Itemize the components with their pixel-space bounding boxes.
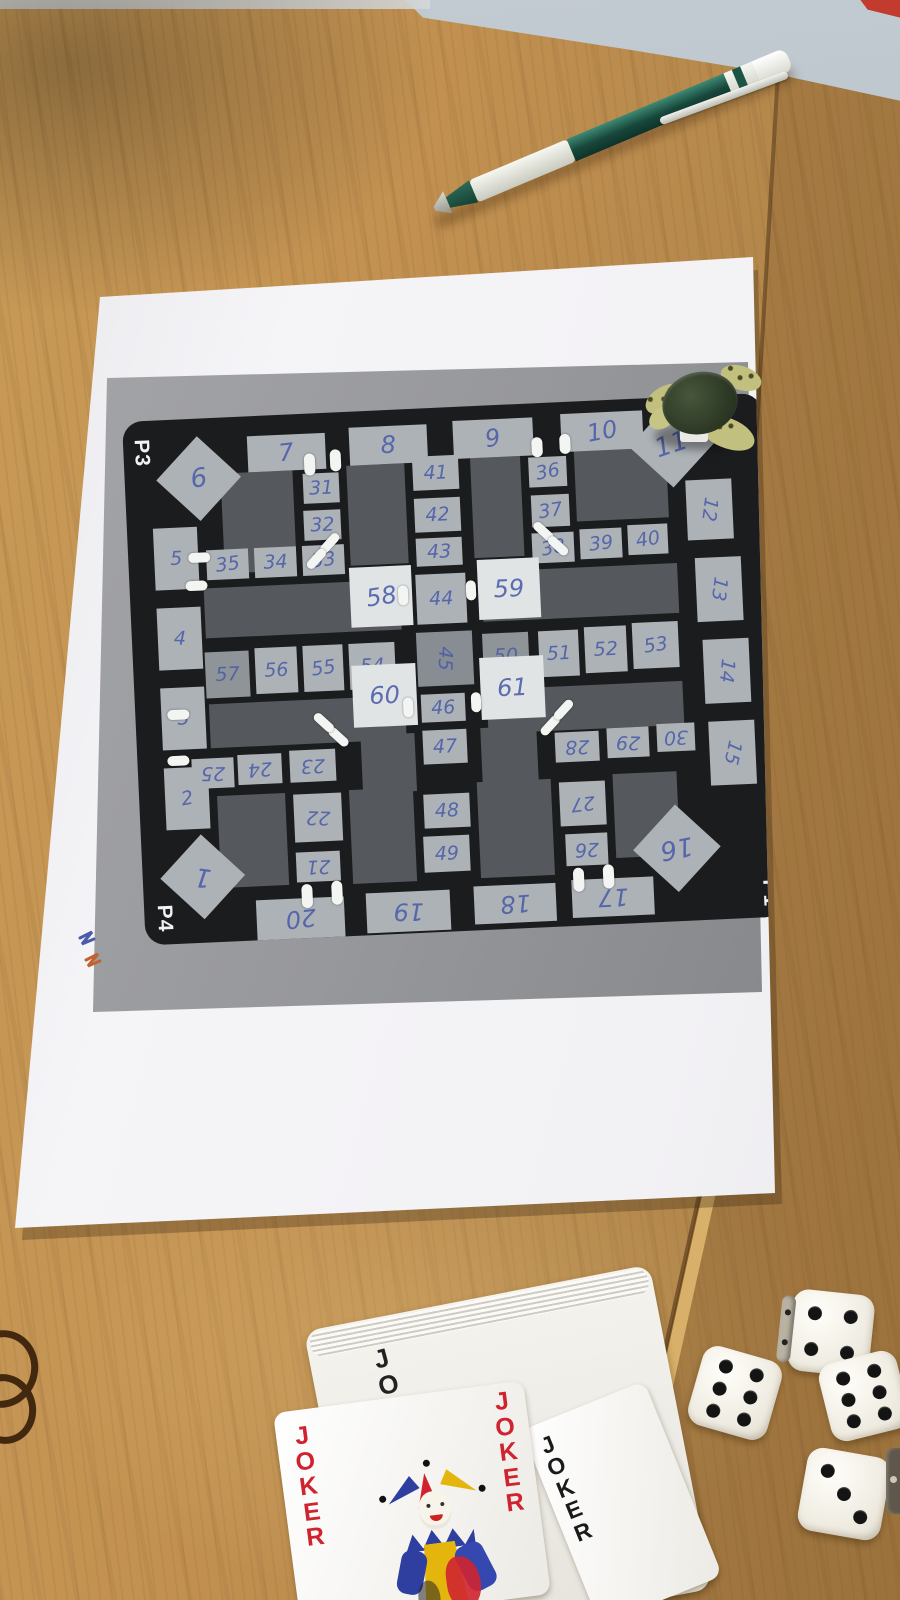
cell-number: 42 [425, 503, 450, 526]
board-cell-13: 13 [695, 556, 744, 622]
white-tick-mark [603, 864, 615, 888]
white-tick-mark [466, 580, 477, 600]
board-cell-47: 47 [422, 729, 467, 765]
cell-number: 20 [284, 903, 318, 934]
board-cell-25: 25 [191, 757, 234, 789]
board-cell-42: 42 [414, 497, 461, 533]
board-cell-45: 45 [416, 630, 474, 686]
board-cell-40: 40 [627, 523, 668, 555]
board-cell-28: 28 [555, 731, 600, 763]
board-cell-35: 35 [206, 548, 249, 580]
white-tick-mark [531, 437, 543, 457]
board-cell-23: 23 [289, 749, 336, 783]
cell-number: 4 [174, 627, 187, 649]
cell-number: 9 [483, 423, 502, 453]
board-cell-14: 14 [702, 638, 751, 704]
cell-number: 60 [369, 681, 401, 710]
cell-number: 15 [719, 738, 746, 766]
cell-number: 10 [584, 415, 619, 448]
board-cell-18: 18 [473, 883, 557, 925]
handwritten-scribbles [62, 930, 122, 990]
board-cell-41: 41 [412, 455, 459, 491]
cell-number: 57 [215, 663, 240, 686]
board-field-square [470, 456, 524, 558]
cell-number: 1 [193, 861, 213, 893]
cell-number: 21 [306, 855, 331, 878]
cell-number: 52 [593, 638, 618, 661]
white-tick-mark [329, 449, 341, 471]
board-cell-48: 48 [423, 793, 470, 829]
cell-number: 34 [263, 551, 288, 574]
board-cell-59: 59 [477, 557, 542, 620]
board-cell-46: 46 [421, 693, 466, 723]
board-cell-29: 29 [606, 726, 649, 758]
cell-number: 40 [634, 527, 661, 552]
cell-number: 19 [393, 897, 424, 925]
white-tick-mark [167, 755, 189, 766]
die-pip [866, 1362, 883, 1379]
cell-number: 26 [574, 838, 599, 861]
board-cell-19: 19 [366, 890, 452, 934]
cell-number: 41 [423, 461, 448, 484]
cell-number: 35 [214, 552, 241, 577]
board-cell-24: 24 [237, 753, 282, 785]
die-pip [742, 1389, 759, 1406]
cell-number: 53 [642, 632, 669, 657]
white-tick-mark [471, 692, 482, 712]
cell-number: 5 [170, 547, 183, 570]
cell-number: 8 [380, 431, 397, 460]
joker-label-left: JOKER [291, 1423, 327, 1552]
white-tick-mark [403, 697, 414, 717]
deck-top-card-label: JO [368, 1343, 401, 1399]
cell-number: 45 [434, 646, 457, 671]
board-cell-34: 34 [254, 546, 297, 578]
board-cell-57: 57 [205, 650, 251, 698]
cell-number: 47 [432, 735, 457, 758]
cell-number: 48 [434, 799, 459, 822]
cell-number: 6 [188, 463, 209, 495]
joker-card-front: JOKER JOKER [273, 1380, 551, 1600]
board-field-square [360, 733, 417, 793]
board-cell-30: 30 [656, 722, 695, 752]
board-cell-61: 61 [479, 655, 546, 720]
board-cell-55: 55 [302, 644, 344, 692]
die-pip [717, 1358, 734, 1375]
die-pip [807, 1305, 822, 1320]
corner-label-p4: P4 [152, 904, 177, 933]
board-field-square [346, 463, 408, 566]
die-pip [803, 1341, 818, 1356]
board-cell-49: 49 [423, 835, 471, 873]
board-cell-56: 56 [254, 646, 298, 694]
die-pip [845, 1413, 862, 1430]
cell-number: 30 [663, 726, 688, 749]
board-cell-4: 4 [157, 607, 204, 671]
board-cell-26: 26 [565, 832, 608, 866]
die-pip [843, 1309, 858, 1324]
board-cell-52: 52 [584, 625, 628, 673]
board-field-square [349, 787, 417, 884]
cell-number: 46 [431, 696, 456, 719]
board-cell-36: 36 [528, 456, 567, 488]
cell-number: 25 [201, 762, 225, 784]
board-cell-31: 31 [303, 472, 340, 504]
cell-number: 56 [264, 659, 289, 682]
white-tick-mark [304, 453, 316, 475]
die-pip [871, 1384, 888, 1401]
white-tick-mark [559, 434, 571, 454]
cell-number: 24 [247, 757, 273, 781]
turtle-figurine [636, 356, 766, 476]
die-pip [704, 1402, 721, 1419]
cell-number: 43 [427, 540, 452, 563]
cell-number: 2 [179, 787, 195, 811]
board-cell-60: 60 [351, 663, 418, 728]
die-pip [852, 1509, 868, 1525]
cell-number: 36 [534, 459, 562, 485]
die-pip [820, 1463, 836, 1479]
white-tick-mark [301, 884, 313, 908]
white-tick-mark [331, 880, 343, 904]
cell-number: 44 [429, 587, 454, 610]
board-cell-20: 20 [256, 896, 346, 940]
cell-number: 39 [588, 531, 615, 556]
cell-number: 27 [570, 791, 597, 816]
jester-figure [373, 1455, 512, 1600]
cell-number: 14 [715, 658, 739, 684]
board-field-square [477, 779, 555, 878]
cell-number: 17 [597, 883, 629, 912]
cell-number: 55 [310, 656, 337, 681]
cell-number: 37 [537, 498, 564, 523]
partial-die-edge [886, 1448, 900, 1514]
die-pip [836, 1486, 852, 1502]
cell-number: 23 [300, 754, 325, 777]
board-cell-9: 9 [452, 417, 534, 459]
cell-number: 28 [565, 735, 590, 758]
white-tick-mark [573, 868, 585, 892]
cell-number: 31 [309, 476, 334, 499]
cell-number: 12 [697, 496, 722, 523]
cell-number: 13 [707, 576, 732, 603]
board-cell-39: 39 [579, 527, 622, 559]
die-showing-3 [795, 1445, 892, 1542]
board-field-square [480, 726, 539, 786]
cell-number: 49 [434, 842, 459, 865]
die-pip [711, 1380, 728, 1397]
board-cell-43: 43 [416, 537, 463, 567]
board-cell-27: 27 [559, 780, 607, 826]
die-pip [876, 1405, 893, 1422]
board-cell-53: 53 [632, 621, 680, 669]
white-tick-mark [398, 585, 409, 605]
cell-number: 16 [658, 830, 696, 866]
board-cell-21: 21 [296, 851, 341, 883]
board-cell-15: 15 [708, 720, 757, 786]
photo-scene: 1234567891011121314151617181920212223242… [0, 0, 900, 1600]
board-cell-22: 22 [293, 792, 343, 842]
die-pip [835, 1370, 852, 1387]
board-cell-12: 12 [685, 478, 734, 540]
corner-label-p3: P3 [129, 439, 154, 468]
cell-number: 7 [277, 438, 295, 468]
board-cell-44: 44 [415, 573, 467, 625]
cell-number: 61 [497, 673, 529, 702]
white-tick-mark [167, 709, 189, 720]
cell-number: 51 [546, 642, 571, 665]
white-tick-mark [185, 580, 207, 591]
die-pip [736, 1411, 753, 1428]
board-cell-51: 51 [538, 630, 580, 678]
die-pip [748, 1367, 765, 1384]
cell-number: 18 [499, 888, 532, 918]
cell-number: 29 [616, 731, 641, 754]
white-tick-mark [188, 552, 210, 563]
cell-number: 58 [364, 580, 398, 612]
cell-number: 59 [493, 574, 525, 603]
cell-number: 22 [306, 806, 331, 829]
die-pip [840, 1391, 857, 1408]
